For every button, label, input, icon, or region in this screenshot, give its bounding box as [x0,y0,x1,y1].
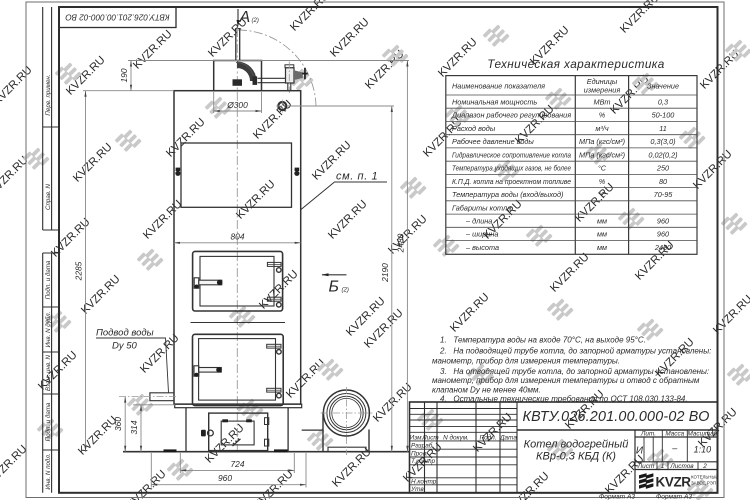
svg-text:(2): (2) [342,288,349,294]
svg-text:1:10: 1:10 [694,445,712,455]
svg-text:– ширина: – ширина [465,230,498,239]
svg-text:KVZR.RU: KVZR.RU [125,468,169,500]
svg-text:%: % [599,177,606,186]
svg-text:3. На отводящей трубе котла,: 3. На отводящей трубе котла, до запорной… [440,367,709,376]
svg-text:МПа (кгс/см²): МПа (кгс/см²) [579,150,625,159]
svg-text:мм: мм [597,230,607,239]
svg-text:Ø300: Ø300 [226,100,248,110]
svg-text:манометр, прибор для измерения: манометр, прибор для измерения температу… [432,357,620,366]
svg-text:Подп. и дата: Подп. и дата [45,260,52,299]
svg-text:KVZR.RU: KVZR.RU [0,443,30,487]
svg-text:KVZR.RU: KVZR.RU [0,64,35,108]
svg-text:Лист: Лист [421,434,439,441]
svg-text:Масса: Масса [665,430,684,437]
svg-text:KVZR.RU: KVZR.RU [131,28,175,72]
svg-text:N докум.: N докум. [443,433,469,441]
svg-text:KVZR.RU: KVZR.RU [234,178,278,222]
svg-text:KVZR.RU: KVZR.RU [252,468,296,500]
svg-text:Формат А3: Формат А3 [656,494,692,500]
svg-text:(2): (2) [252,18,259,24]
svg-text:Номинальная мощность: Номинальная мощность [452,97,537,106]
svg-text:измерения: измерения [584,86,621,95]
svg-text:1. Температура воды на входе: 1. Температура воды на входе 70°С, на вы… [440,336,646,345]
svg-text:Подп.: Подп. [479,433,496,441]
svg-text:клапаном Dу не менее 40мм.: клапаном Dу не менее 40мм. [432,385,541,394]
svg-text:KVZR.RU: KVZR.RU [288,0,332,34]
svg-text:KVZR.RU: KVZR.RU [386,213,430,257]
svg-text:960: 960 [218,473,232,483]
svg-text:50-100: 50-100 [652,111,675,120]
svg-text:KVZR.RU: KVZR.RU [448,291,492,335]
svg-text:МПа (кгс/см²): МПа (кгс/см²) [579,137,625,146]
svg-text:Наименование показателя: Наименование показателя [452,82,545,91]
svg-text:KVZR.RU: KVZR.RU [164,116,208,160]
svg-text:Формат А3: Формат А3 [599,494,635,500]
svg-text:11: 11 [659,124,667,133]
svg-text:2: 2 [702,463,707,470]
svg-text:2480: 2480 [654,243,671,252]
svg-text:Температура воды (вход/выход): Температура воды (вход/выход) [452,190,563,199]
svg-text:Взам. инв. N: Взам. инв. N [45,354,52,391]
svg-text:2. На подводящей трубе котла: 2. На подводящей трубе котла, до запорно… [439,347,711,356]
svg-text:314: 314 [129,420,139,434]
svg-text:Расход воды: Расход воды [452,124,496,133]
svg-text:– высота: – высота [465,243,499,252]
svg-text:мм: мм [597,217,607,226]
svg-text:KVZR.RU: KVZR.RU [251,98,295,142]
svg-text:1: 1 [661,463,665,470]
svg-text:Гидравлическое сопротивление к: Гидравлическое сопротивление котла [452,150,571,159]
svg-text:Т.контр: Т.контр [411,458,435,465]
svg-text:Изм.: Изм. [410,434,424,441]
svg-text:KVZR.RU: KVZR.RU [618,0,662,36]
svg-text:250: 250 [656,164,669,173]
svg-text:0,3(3,0): 0,3(3,0) [650,137,675,146]
svg-text:KVZR.RU: KVZR.RU [284,357,328,401]
svg-text:Пров.: Пров. [411,451,428,458]
svg-text:Габариты котла: Габариты котла [452,203,511,212]
svg-text:KVZR.RU: KVZR.RU [548,251,592,295]
svg-text:80: 80 [659,177,667,186]
svg-text:Листов: Листов [669,463,694,470]
svg-text:960: 960 [657,230,669,239]
svg-text:– длина: – длина [465,217,492,226]
svg-text:Температура уходящих газов, не: Температура уходящих газов, не более [452,164,571,173]
svg-text:Инв. N дубл.: Инв. N дубл. [45,312,52,348]
svg-text:м³/ч: м³/ч [595,124,608,133]
svg-text:960: 960 [657,217,669,226]
svg-text:0,3: 0,3 [658,97,668,106]
svg-text:KVZR.RU: KVZR.RU [326,198,370,242]
svg-text:KVZR.RU: KVZR.RU [141,198,185,242]
svg-text:Перв. примен.: Перв. примен. [45,74,52,115]
svg-text:Подп. и дата: Подп. и дата [45,402,52,441]
svg-text:KVZR.RU: KVZR.RU [371,381,415,425]
svg-text:А: А [239,9,251,26]
svg-text:КВТУ.026.201.00.000-02 ВО: КВТУ.026.201.00.000-02 ВО [522,409,709,425]
svg-text:804: 804 [231,231,245,241]
svg-text:Разраб.: Разраб. [411,442,434,450]
svg-text:2190: 2190 [380,263,390,283]
svg-text:Утв.: Утв. [410,486,426,493]
svg-text:°С: °С [598,190,607,199]
svg-text:%: % [599,111,606,120]
svg-text:Справ. N: Справ. N [45,184,52,210]
svg-text:KVZR.RU: KVZR.RU [71,141,115,185]
svg-text:Подвод воды: Подвод воды [96,328,154,339]
svg-text:KVZR.RU: KVZR.RU [330,446,374,490]
svg-text:KVZR.RU: KVZR.RU [436,36,480,80]
svg-text:мм: мм [597,243,607,252]
svg-text:Значение: Значение [647,82,679,91]
svg-text:°С: °С [598,164,607,173]
svg-text:Техническая характеристика: Техническая характеристика [487,57,664,71]
svg-text:КВр-0,3 КБД (К): КВр-0,3 КБД (К) [536,451,616,463]
svg-text:К.П.Д. котла на проектном топл: К.П.Д. котла на проектном топливе [452,177,571,186]
svg-text:Лист: Лист [637,463,655,470]
svg-text:МВт: МВт [593,97,610,106]
svg-text:190: 190 [119,68,129,82]
svg-text:KVZR.RU: KVZR.RU [691,148,735,192]
svg-text:Котел водогрейный: Котел водогрейный [524,439,629,451]
svg-text:–: – [671,443,678,453]
svg-text:2285: 2285 [74,261,84,281]
svg-text:Рабочее давление воды: Рабочее давление воды [452,137,534,146]
svg-text:724: 724 [231,459,245,469]
svg-text:Инв. N подл.: Инв. N подл. [45,453,52,489]
svg-text:манометр, прибор для измерения: манометр, прибор для измерения температу… [432,376,700,385]
svg-text:ЗАВОД РЭП: ЗАВОД РЭП [691,481,716,486]
svg-text:И: И [636,446,644,457]
svg-text:см. п. 1: см. п. 1 [336,171,378,183]
svg-text:КВТУ.026.201.00.000-02 ВО: КВТУ.026.201.00.000-02 ВО [65,12,170,21]
svg-text:КОТЕЛЬНЫЙ: КОТЕЛЬНЫЙ [691,475,719,480]
svg-text:KVZR.RU: KVZR.RU [471,411,515,455]
svg-text:Б: Б [329,279,339,296]
svg-text:Н.контр.: Н.контр. [411,478,438,485]
svg-text:Лит.: Лит. [640,430,656,437]
svg-text:KVZR.RU: KVZR.RU [698,48,742,92]
svg-text:0,02(0,2): 0,02(0,2) [648,150,677,159]
svg-text:KVZR.RU: KVZR.RU [257,268,301,312]
svg-text:360: 360 [113,417,123,431]
svg-text:Dу 50: Dу 50 [112,340,138,351]
svg-text:Масштаб: Масштаб [687,429,717,437]
svg-text:KVZR: KVZR [656,475,692,490]
svg-text:70-95: 70-95 [654,190,674,199]
svg-text:Дата: Дата [499,434,517,441]
svg-text:KVZR.RU: KVZR.RU [328,16,372,60]
svg-text:2480: 2480 [396,233,406,253]
svg-text:Диапазон рабочего регулировани: Диапазон рабочего регулирования [451,111,571,120]
